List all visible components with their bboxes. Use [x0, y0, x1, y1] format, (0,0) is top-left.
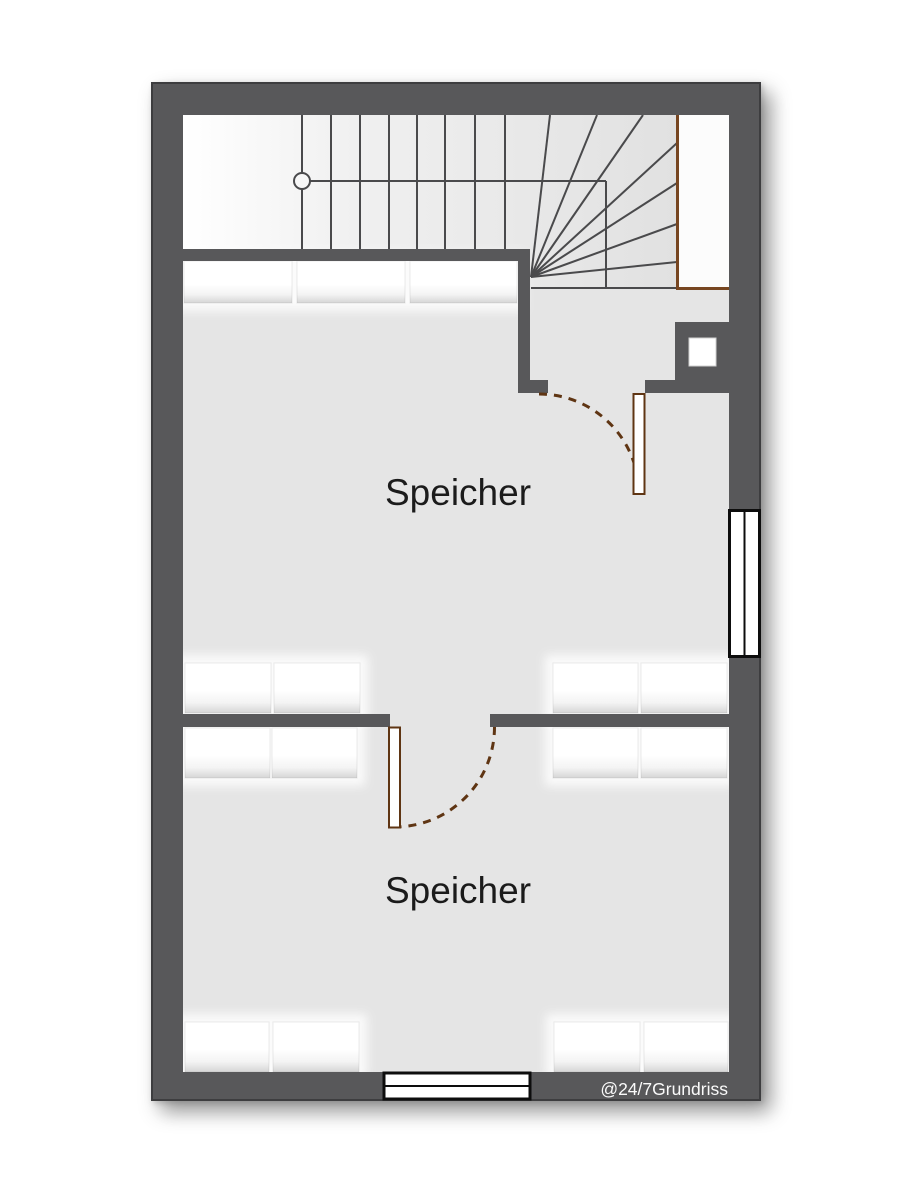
- watermark: @24/7Grundriss: [600, 1079, 728, 1099]
- knee-wall-box: [410, 261, 517, 303]
- window-right: [730, 511, 760, 657]
- room-label-speicher-lower: Speicher: [385, 870, 531, 911]
- floorplan: Speicher Speicher @24/7Grundriss: [152, 83, 760, 1100]
- knee-wall-box: [184, 261, 292, 303]
- stair-landing: [679, 115, 729, 288]
- room-label-speicher-upper: Speicher: [385, 472, 531, 513]
- outer-wall-left: [152, 83, 183, 1100]
- walking-line-start-circle: [294, 173, 310, 189]
- understairs-wall-horizontal: [183, 249, 530, 261]
- knee-wall-box: [185, 663, 271, 713]
- door-lower-leaf: [389, 728, 400, 828]
- knee-wall-box: [641, 728, 727, 778]
- partition-wall-left: [183, 714, 390, 727]
- understairs-wall-vertical: [518, 249, 530, 382]
- chimney-flue-opening: [689, 338, 716, 366]
- knee-wall-box: [272, 728, 357, 778]
- door-wall-stub-left: [518, 380, 548, 393]
- outer-wall-top: [152, 83, 760, 115]
- door-upper-leaf: [634, 394, 645, 494]
- knee-wall-box: [274, 663, 360, 713]
- knee-wall-box: [554, 1022, 640, 1072]
- knee-wall-box: [185, 1022, 269, 1072]
- floorplan-canvas: Speicher Speicher @24/7Grundriss: [0, 0, 922, 1200]
- knee-wall-box: [273, 1022, 359, 1072]
- knee-wall-box: [641, 663, 727, 713]
- partition-wall-right: [490, 714, 729, 727]
- knee-wall-box: [553, 663, 638, 713]
- knee-wall-box: [553, 728, 638, 778]
- knee-wall-box: [297, 261, 405, 303]
- window-bottom: [384, 1073, 530, 1099]
- knee-wall-box: [644, 1022, 728, 1072]
- knee-wall-box: [185, 728, 270, 778]
